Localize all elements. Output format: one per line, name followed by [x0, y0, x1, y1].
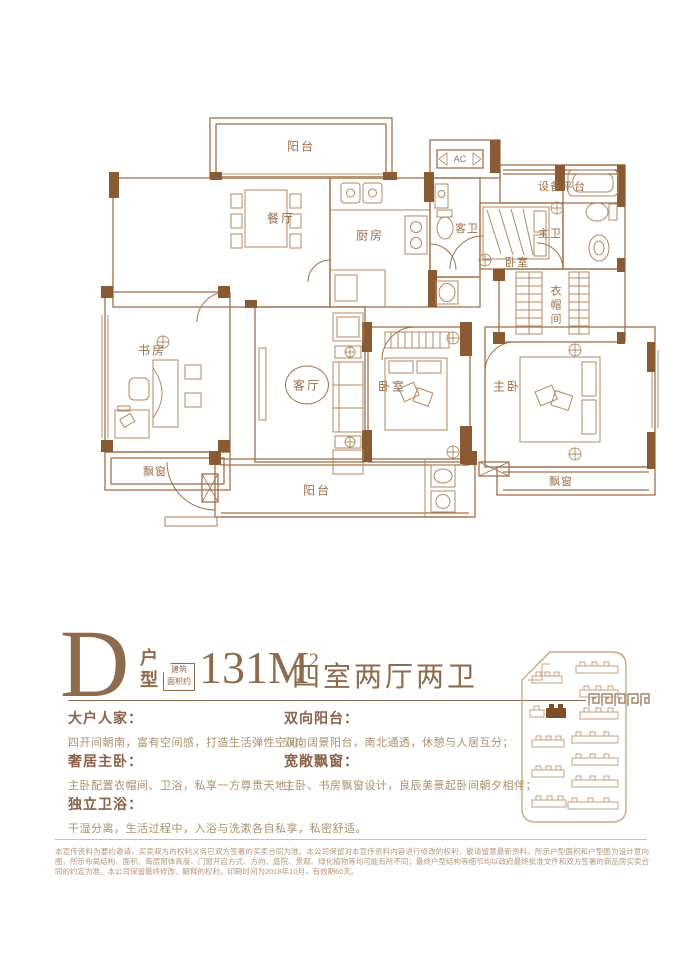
room-label-master-bedroom: 主卧 — [493, 378, 521, 395]
room-label-closet: 衣帽间 — [547, 285, 563, 327]
footer-divider — [55, 839, 647, 840]
highlighted-building — [546, 704, 566, 718]
room-label-bedroom-mid: 卧室 — [378, 378, 406, 395]
area-tag: 建筑 面积约 — [163, 663, 195, 691]
feature-heading: 独立卫浴： — [68, 794, 338, 814]
room-label-balcony-top: 阳台 — [287, 138, 315, 155]
feature-body: 双向阔景阳台，南北通透，休憩与人居互分； — [284, 734, 554, 750]
title-rule — [68, 700, 586, 701]
site-plan-minimap — [520, 650, 630, 826]
flyer-page: { "colors": { "wall": "#8a5a32", "line":… — [0, 0, 700, 954]
bed-master-bedroom — [520, 357, 600, 442]
room-label-study: 书房 — [138, 342, 166, 359]
guest-bath-fixtures — [435, 184, 458, 304]
room-label-bay-right: 飘窗 — [549, 473, 573, 489]
laundry-sink — [425, 459, 455, 517]
feature-heading: 双向阳台： — [284, 708, 554, 728]
unit-type-label: 户型 — [140, 648, 160, 692]
kitchen-counter — [330, 183, 430, 307]
unit-letter: D — [60, 622, 129, 706]
room-label-master-bath: 主卫 — [538, 225, 562, 241]
ac-label: AC — [454, 154, 467, 164]
feature-block: 双向阳台： 双向阔景阳台，南北通透，休憩与人居互分； — [284, 708, 554, 750]
floorplan-drawing: AC — [85, 110, 660, 542]
study-desk — [115, 360, 201, 438]
area-tag-line1: 建筑 — [164, 664, 194, 676]
area-tag-line2: 面积约 — [164, 676, 194, 688]
room-label-kitchen: 厨房 — [356, 227, 384, 244]
room-label-living: 客厅 — [285, 366, 329, 405]
room-label-bay-left: 飘窗 — [143, 463, 167, 479]
room-label-guest-bath: 客卫 — [455, 220, 479, 236]
feature-block: 独立卫浴： 干湿分离，生活过程中，入浴与洗漱各自私享，私密舒适。 — [68, 794, 338, 836]
building-footprints — [530, 662, 618, 809]
rooms-summary: 四室两厅两卫 — [292, 655, 478, 695]
floorplan: AC 阳台 餐厅 厨房 客卫 设备平台 卧室 主卫 衣帽间 书房 客厅 卧室 主… — [85, 110, 660, 542]
room-label-balcony-bottom: 阳台 — [303, 482, 331, 499]
room-label-dining: 餐厅 — [267, 210, 295, 227]
room-label-bedroom-top: 卧室 — [505, 254, 529, 270]
room-label-equipment-platform: 设备平台 — [538, 178, 586, 194]
feature-body: 主卧、书房飘窗设计，良辰美景起卧间朝夕相伴； — [284, 777, 554, 793]
feature-body: 干湿分离，生活过程中，入浴与洗漱各自私享，私密舒适。 — [68, 820, 338, 836]
disclaimer-text: 本宣传资料为要约邀请，买卖双方的权利义务已双方签署的买卖合同为准。本公司保留对本… — [55, 847, 649, 877]
feature-block: 宽敞飘窗： 主卧、书房飘窗设计，良辰美景起卧间朝夕相伴； — [284, 751, 554, 793]
feature-heading: 宽敞飘窗： — [284, 751, 554, 771]
